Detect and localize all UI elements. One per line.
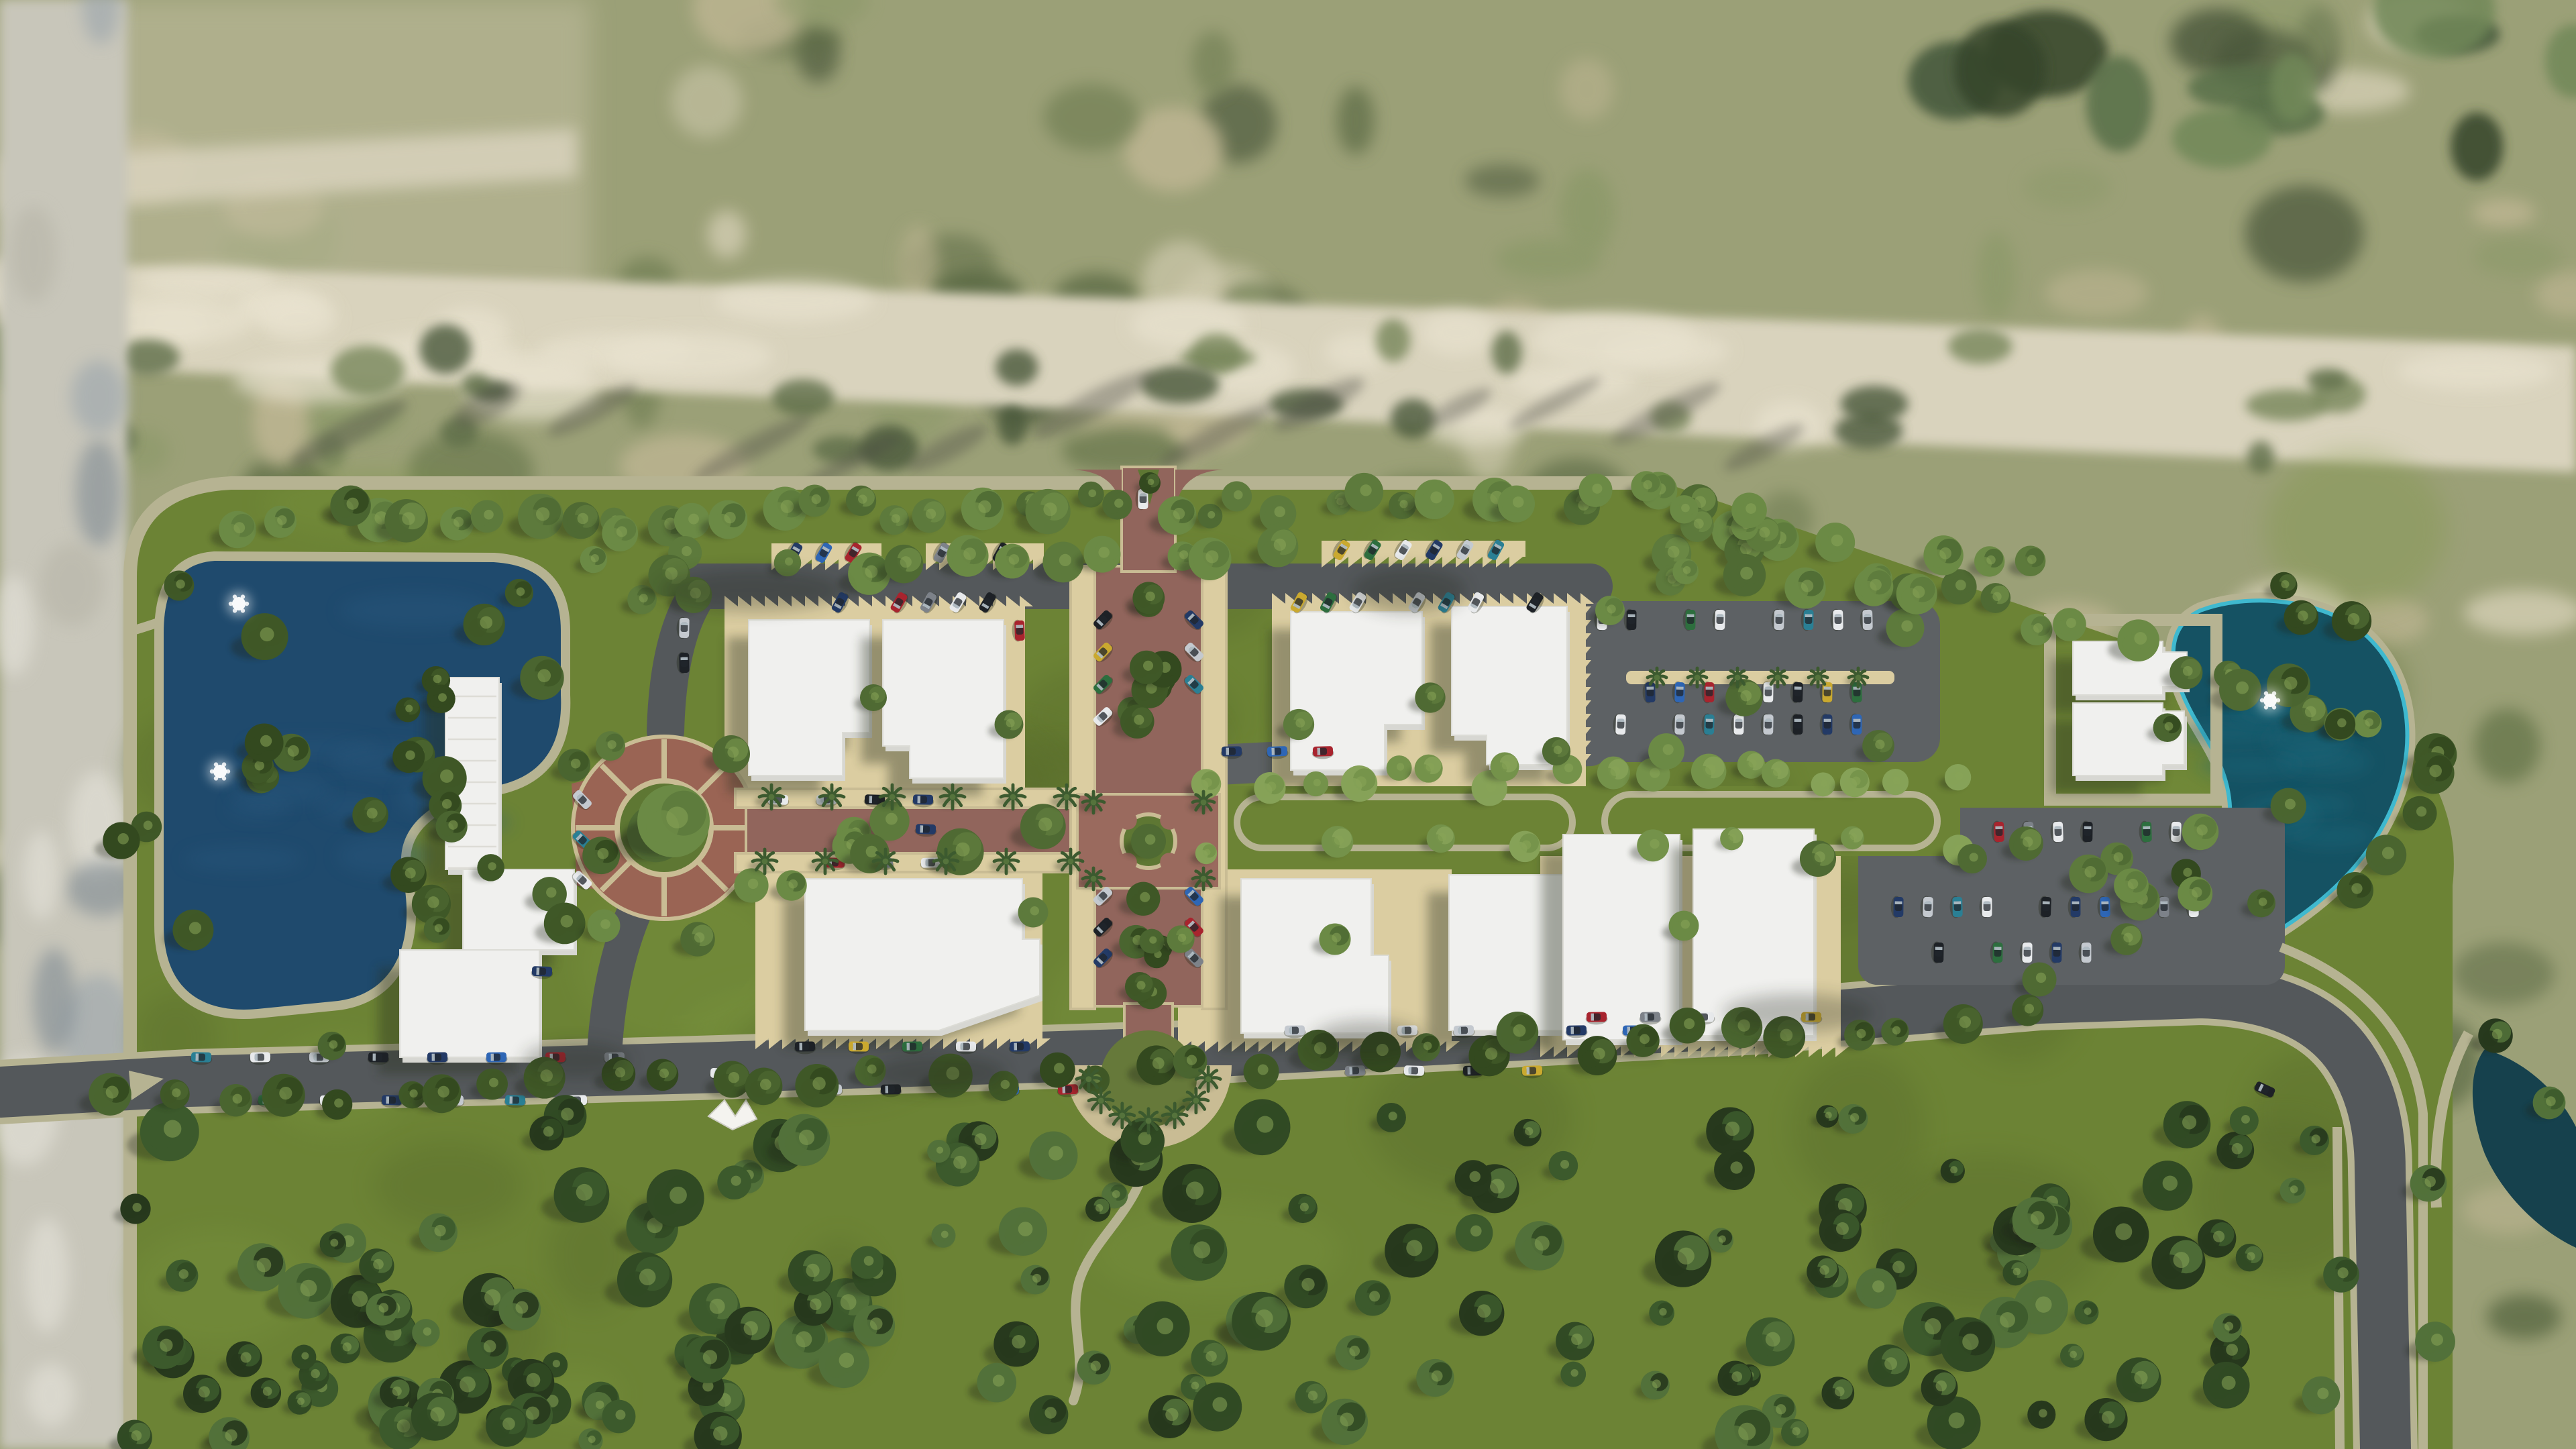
- site-plan-canvas: [0, 0, 2576, 1449]
- aerial-site-plan: [0, 0, 2576, 1449]
